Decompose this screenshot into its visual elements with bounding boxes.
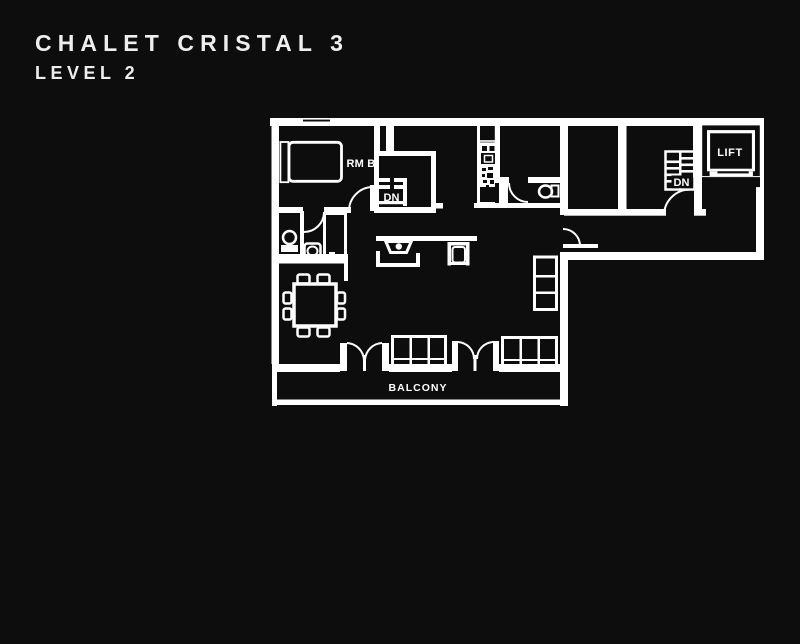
svg-text:DN: DN [384,192,400,204]
svg-text:DN: DN [674,177,690,189]
svg-text:RM B: RM B [347,158,376,170]
svg-text:BALCONY: BALCONY [389,382,448,394]
svg-text:LIFT: LIFT [717,147,743,159]
